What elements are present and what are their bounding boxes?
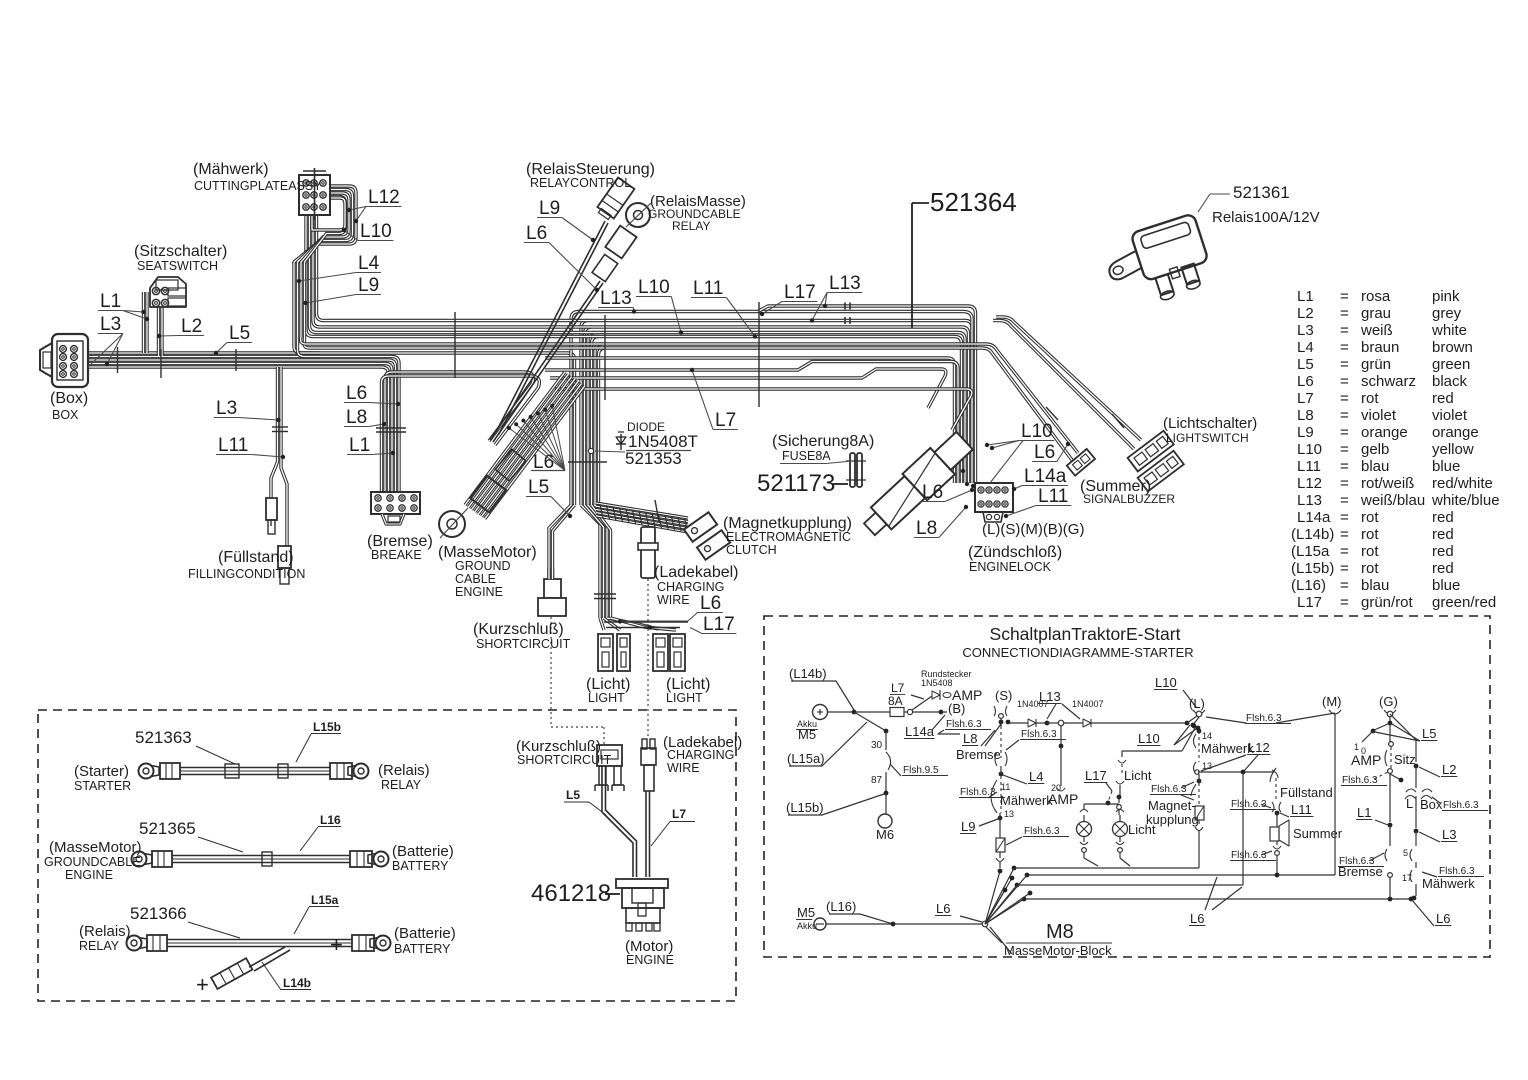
svg-text:rot: rot [1361, 543, 1379, 560]
svg-text:L7: L7 [1297, 390, 1314, 407]
svg-text:grey: grey [1432, 305, 1462, 322]
svg-text:L11: L11 [1291, 802, 1312, 817]
svg-text:Mähwerk: Mähwerk [1201, 741, 1254, 756]
svg-text:violet: violet [1432, 407, 1468, 424]
svg-text:FUSE8A: FUSE8A [782, 449, 831, 463]
svg-text:=: = [1340, 390, 1349, 407]
svg-text:521361: 521361 [1233, 183, 1290, 202]
svg-text:L6: L6 [700, 593, 721, 614]
svg-text:L6: L6 [346, 383, 367, 404]
svg-text:Mähwerk: Mähwerk [1422, 876, 1475, 891]
svg-text:ENGINE: ENGINE [626, 953, 674, 967]
svg-text:AMP: AMP [1048, 791, 1078, 807]
svg-text:L1: L1 [349, 435, 370, 456]
svg-text:white/blue: white/blue [1431, 492, 1500, 509]
svg-text:L2: L2 [181, 316, 202, 337]
svg-text:Box: Box [1420, 797, 1443, 812]
svg-text:L10: L10 [1138, 731, 1160, 746]
svg-text:87: 87 [871, 775, 883, 786]
svg-text:braun: braun [1361, 339, 1399, 356]
svg-text:L4: L4 [1297, 339, 1314, 356]
svg-text:L14a: L14a [1297, 509, 1331, 526]
svg-text:L6: L6 [936, 901, 950, 916]
svg-text:CABLE: CABLE [455, 572, 496, 586]
svg-text:L14a: L14a [1024, 466, 1067, 487]
svg-text:1N4007: 1N4007 [1072, 699, 1104, 709]
svg-text:L6: L6 [922, 482, 943, 503]
svg-text:LIGHT: LIGHT [588, 691, 625, 705]
svg-text:(L): (L) [1189, 696, 1205, 711]
svg-text:Bremse: Bremse [1338, 864, 1383, 879]
svg-text:(L15b): (L15b) [786, 800, 824, 815]
svg-text:L13: L13 [600, 288, 632, 309]
svg-text:(Kurzschluß): (Kurzschluß) [473, 621, 564, 638]
svg-text:=: = [1340, 543, 1349, 560]
svg-text:461218: 461218 [531, 880, 611, 907]
svg-text:L8: L8 [963, 731, 977, 746]
svg-text:FILLINGCONDITION: FILLINGCONDITION [188, 567, 305, 581]
svg-text:13: 13 [1202, 761, 1212, 771]
svg-text:14: 14 [1202, 731, 1212, 741]
svg-text:30: 30 [871, 740, 883, 751]
svg-text:L3: L3 [100, 314, 121, 335]
svg-text:L17: L17 [1085, 768, 1107, 783]
svg-text:M8: M8 [1046, 921, 1074, 943]
svg-text:rot: rot [1361, 560, 1379, 577]
svg-text:grün: grün [1361, 356, 1391, 373]
svg-text:L5: L5 [528, 477, 549, 498]
svg-text:L12: L12 [1297, 475, 1322, 492]
svg-text:violet: violet [1361, 407, 1397, 424]
svg-text:=: = [1340, 475, 1349, 492]
svg-text:521353: 521353 [625, 449, 682, 468]
svg-text:L12: L12 [368, 187, 400, 208]
svg-text:=: = [1340, 373, 1349, 390]
svg-text:L14a: L14a [905, 724, 935, 739]
svg-text:(Ladekabel): (Ladekabel) [654, 564, 739, 581]
svg-text:(M): (M) [1322, 694, 1342, 709]
svg-text:Mähwerk: Mähwerk [1000, 793, 1053, 808]
svg-text:(Füllstand): (Füllstand) [218, 549, 294, 566]
svg-text:Sitz: Sitz [1394, 752, 1416, 767]
svg-text:L6: L6 [533, 452, 554, 473]
svg-text:weiß/blau: weiß/blau [1360, 492, 1425, 509]
svg-text:L7: L7 [672, 807, 686, 821]
svg-text:(L)(S)(M)(B)(G): (L)(S)(M)(B)(G) [982, 521, 1084, 538]
svg-text:STARTER: STARTER [74, 779, 131, 793]
svg-text:L17: L17 [1297, 594, 1322, 611]
svg-text:L9: L9 [1297, 424, 1314, 441]
svg-text:L9: L9 [539, 198, 560, 219]
svg-text:red/white: red/white [1432, 475, 1493, 492]
svg-text:black: black [1432, 373, 1468, 390]
svg-text:Flsh.9.5: Flsh.9.5 [903, 765, 939, 776]
svg-text:L10: L10 [638, 277, 670, 298]
svg-text:L: L [1406, 796, 1413, 811]
svg-text:(L15a): (L15a) [787, 751, 825, 766]
svg-text:BATTERY: BATTERY [394, 942, 451, 956]
svg-text:L11: L11 [1038, 486, 1068, 507]
svg-text:(Box): (Box) [50, 390, 88, 407]
svg-text:L8: L8 [346, 407, 367, 428]
svg-text:AMP: AMP [952, 687, 982, 703]
svg-text:RELAY: RELAY [79, 939, 120, 953]
svg-text:521365: 521365 [139, 819, 196, 838]
svg-text:blue: blue [1432, 577, 1460, 594]
svg-text:(G): (G) [1379, 694, 1398, 709]
svg-text:=: = [1340, 526, 1349, 543]
svg-text:rosa: rosa [1361, 288, 1391, 305]
svg-text:L5: L5 [1297, 356, 1314, 373]
svg-text:BREAKE: BREAKE [371, 548, 422, 562]
svg-text:=: = [1340, 424, 1349, 441]
svg-text:1N5408: 1N5408 [921, 678, 953, 688]
svg-text:L5: L5 [566, 788, 580, 802]
svg-text:L7: L7 [715, 410, 736, 431]
svg-text:521366: 521366 [130, 904, 187, 923]
svg-text:BATTERY: BATTERY [392, 859, 449, 873]
svg-text:M5: M5 [797, 905, 815, 920]
svg-text:L1: L1 [1297, 288, 1314, 305]
svg-text:L17: L17 [703, 614, 735, 635]
svg-text:rot/weiß: rot/weiß [1361, 475, 1414, 492]
svg-text:L13: L13 [829, 273, 861, 294]
svg-text:SchaltplanTraktorE-Start: SchaltplanTraktorE-Start [990, 624, 1181, 644]
svg-text:SIGNALBUZZER: SIGNALBUZZER [1083, 492, 1175, 506]
svg-text:yellow: yellow [1432, 441, 1474, 458]
svg-text:L9: L9 [358, 275, 379, 296]
svg-text:red: red [1432, 560, 1454, 577]
svg-text:SHORTCIRCUIT: SHORTCIRCUIT [476, 637, 571, 651]
svg-text:L3: L3 [1442, 827, 1456, 842]
svg-text:=: = [1340, 509, 1349, 526]
svg-text:red: red [1432, 526, 1454, 543]
svg-text:L12: L12 [1248, 740, 1270, 755]
svg-text:L3: L3 [1297, 322, 1314, 339]
svg-text:521363: 521363 [135, 728, 192, 747]
svg-text:(Mähwerk): (Mähwerk) [193, 161, 269, 178]
svg-text:L15a: L15a [311, 893, 339, 907]
svg-text:SEATSWITCH: SEATSWITCH [137, 259, 218, 273]
svg-text:WIRE: WIRE [657, 593, 690, 607]
svg-text:red: red [1432, 509, 1454, 526]
svg-text:L10: L10 [360, 221, 392, 242]
svg-text:(S): (S) [995, 688, 1012, 703]
svg-text:BOX: BOX [52, 408, 79, 422]
svg-text:L1: L1 [100, 291, 121, 312]
svg-text:(L15a: (L15a [1291, 543, 1330, 560]
svg-text:(Batterie): (Batterie) [392, 843, 454, 860]
svg-text:L14b: L14b [283, 976, 311, 990]
svg-text:L6: L6 [1436, 911, 1450, 926]
svg-text:Bremse: Bremse [956, 747, 1001, 762]
svg-text:(L14b): (L14b) [789, 666, 827, 681]
svg-text:L7: L7 [891, 681, 905, 695]
svg-text:WIRE: WIRE [667, 761, 700, 775]
svg-text:L13: L13 [1039, 689, 1061, 704]
svg-text:=: = [1340, 356, 1349, 373]
svg-text:(Starter): (Starter) [74, 763, 129, 780]
svg-text:L11: L11 [1297, 458, 1321, 475]
svg-text:=: = [1340, 407, 1349, 424]
svg-text:(L14b): (L14b) [1291, 526, 1334, 543]
svg-text:M6: M6 [876, 827, 894, 842]
svg-text:MasseMotor-Block: MasseMotor-Block [1004, 943, 1112, 958]
svg-text:M5: M5 [798, 727, 816, 742]
svg-text:(L16): (L16) [826, 899, 856, 914]
svg-text:L6: L6 [526, 223, 547, 244]
svg-text:(MasseMotor): (MasseMotor) [49, 839, 142, 856]
svg-text:=: = [1340, 441, 1349, 458]
svg-text:(Lichtschalter): (Lichtschalter) [1163, 415, 1257, 432]
svg-text:L16: L16 [320, 813, 341, 827]
svg-text:green: green [1432, 356, 1470, 373]
svg-text:brown: brown [1432, 339, 1473, 356]
svg-text:521173: 521173 [757, 470, 835, 497]
svg-text:L2: L2 [1297, 305, 1314, 322]
svg-text:(B): (B) [948, 701, 965, 716]
svg-text:=: = [1340, 594, 1349, 611]
svg-text:GROUNDCABLE: GROUNDCABLE [44, 855, 141, 869]
svg-text:L6: L6 [1034, 442, 1055, 463]
svg-text:L10: L10 [1021, 421, 1053, 442]
svg-text:(Batterie): (Batterie) [394, 925, 456, 942]
svg-text:Flsh.6.3: Flsh.6.3 [1151, 784, 1187, 795]
svg-text:Relais100A/12V: Relais100A/12V [1212, 209, 1320, 226]
svg-text:CHARGING: CHARGING [657, 580, 724, 594]
svg-text:schwarz: schwarz [1361, 373, 1416, 390]
svg-text:orange: orange [1361, 424, 1408, 441]
svg-text:kupplung: kupplung [1146, 812, 1199, 827]
svg-text:pink: pink [1432, 288, 1460, 305]
svg-text:(Zündschloß): (Zündschloß) [968, 544, 1062, 561]
svg-text:=: = [1340, 458, 1349, 475]
svg-text:ENGINE: ENGINE [65, 868, 113, 882]
svg-text:rot: rot [1361, 526, 1379, 543]
svg-text:(L16): (L16) [1291, 577, 1326, 594]
svg-text:L15b: L15b [313, 720, 341, 734]
svg-text:rot: rot [1361, 390, 1379, 407]
svg-text:Flsh.6.3: Flsh.6.3 [1024, 826, 1060, 837]
svg-text:Flsh.6.3: Flsh.6.3 [1021, 729, 1057, 740]
svg-text:521364: 521364 [930, 187, 1017, 217]
svg-text:RELAYCONTROL: RELAYCONTROL [530, 176, 631, 190]
svg-text:ELECTROMAGNETIC: ELECTROMAGNETIC [726, 530, 851, 544]
svg-text:ENGINE: ENGINE [455, 585, 503, 599]
svg-text:RELAY: RELAY [381, 778, 422, 792]
svg-text:L8: L8 [916, 518, 937, 539]
svg-text:L10: L10 [1155, 675, 1177, 690]
svg-text:=: = [1340, 339, 1349, 356]
svg-text:L5: L5 [1422, 726, 1436, 741]
svg-text:L6: L6 [1190, 911, 1204, 926]
svg-text:CHARGING: CHARGING [667, 748, 734, 762]
svg-text:red: red [1432, 543, 1454, 560]
svg-text:L13: L13 [1297, 492, 1322, 509]
svg-text:Füllstand: Füllstand [1280, 785, 1333, 800]
svg-text:rot: rot [1361, 509, 1379, 526]
svg-text:green/red: green/red [1432, 594, 1496, 611]
svg-text:weiß: weiß [1360, 322, 1393, 339]
svg-text:Magnet-: Magnet- [1148, 798, 1196, 813]
svg-text:AMP: AMP [1351, 752, 1381, 768]
svg-text:=: = [1340, 288, 1349, 305]
svg-text:blau: blau [1361, 458, 1389, 475]
svg-text:blau: blau [1361, 577, 1389, 594]
svg-text:L5: L5 [229, 323, 250, 344]
svg-text:L6: L6 [1297, 373, 1314, 390]
svg-text:L11: L11 [693, 278, 723, 299]
svg-text:5: 5 [1403, 848, 1408, 858]
svg-text:L2: L2 [1442, 762, 1456, 777]
svg-text:grün/rot: grün/rot [1361, 594, 1414, 611]
svg-text:(L15b): (L15b) [1291, 560, 1334, 577]
svg-text:Flsh.6.3: Flsh.6.3 [1231, 850, 1267, 861]
svg-text:=: = [1340, 560, 1349, 577]
svg-text:grau: grau [1361, 305, 1391, 322]
svg-text:L4: L4 [1029, 769, 1043, 784]
svg-text:=: = [1340, 305, 1349, 322]
svg-text:GROUND: GROUND [455, 559, 511, 573]
svg-text:L10: L10 [1297, 441, 1322, 458]
svg-text:Flsh.6.3: Flsh.6.3 [1443, 800, 1479, 811]
svg-text:(Sitzschalter): (Sitzschalter) [134, 243, 227, 260]
svg-text:LIGHT: LIGHT [666, 691, 703, 705]
svg-text:RELAY: RELAY [672, 219, 710, 233]
svg-text:L8: L8 [1297, 407, 1314, 424]
svg-text:CUTTINGPLATEASSY: CUTTINGPLATEASSY [194, 179, 322, 193]
svg-text:LIGHTSWITCH: LIGHTSWITCH [1166, 431, 1249, 445]
svg-text:L17: L17 [784, 282, 816, 303]
svg-text:=: = [1340, 577, 1349, 594]
svg-text:orange: orange [1432, 424, 1479, 441]
svg-text:L11: L11 [218, 435, 248, 456]
svg-text:(Sicherung8A): (Sicherung8A) [772, 433, 874, 450]
svg-text:CONNECTIONDIAGRAMME-STARTER: CONNECTIONDIAGRAMME-STARTER [962, 645, 1193, 660]
svg-text:white: white [1431, 322, 1467, 339]
svg-text:=: = [1340, 492, 1349, 509]
svg-text:1: 1 [1354, 742, 1359, 752]
svg-text:Flsh.6.3: Flsh.6.3 [1342, 775, 1378, 786]
svg-text:+: + [330, 932, 343, 957]
svg-text:CLUTCH: CLUTCH [726, 543, 777, 557]
svg-text:=: = [1340, 322, 1349, 339]
svg-text:(Relais): (Relais) [378, 762, 430, 779]
svg-text:L9: L9 [961, 819, 975, 834]
svg-text:Akku: Akku [797, 921, 817, 931]
svg-text:red: red [1432, 390, 1454, 407]
svg-text:L4: L4 [358, 253, 380, 274]
svg-text:11: 11 [1001, 782, 1010, 792]
svg-text:ENGINELOCK: ENGINELOCK [969, 560, 1052, 574]
svg-text:L1: L1 [1357, 805, 1371, 820]
svg-text:Licht: Licht [1124, 768, 1152, 783]
svg-text:13: 13 [1004, 809, 1014, 819]
svg-text:gelb: gelb [1361, 441, 1389, 458]
svg-text:+: + [196, 972, 209, 997]
svg-text:Flsh.6.3: Flsh.6.3 [946, 719, 982, 730]
svg-text:L3: L3 [216, 398, 237, 419]
svg-text:(Relais): (Relais) [79, 923, 131, 940]
svg-text:8A: 8A [888, 694, 903, 708]
svg-text:blue: blue [1432, 458, 1460, 475]
